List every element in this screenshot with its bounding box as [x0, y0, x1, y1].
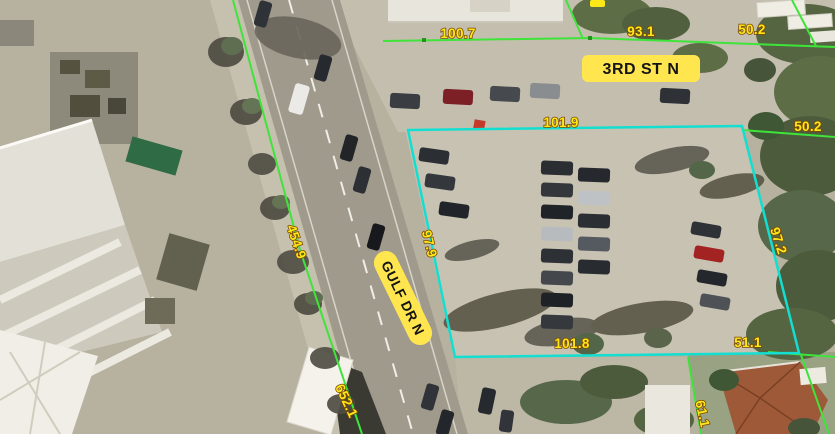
car	[578, 236, 610, 251]
street-label-text: 3RD ST N	[603, 61, 680, 78]
car	[541, 226, 573, 241]
car	[443, 89, 474, 106]
car	[541, 314, 573, 329]
street-label-3rd-st: 3RD ST N	[582, 55, 700, 82]
cutoff-dimension-label	[590, 0, 605, 7]
car	[390, 93, 421, 110]
car	[660, 88, 691, 105]
car	[578, 259, 610, 274]
car	[541, 248, 573, 263]
car	[541, 270, 573, 285]
map-viewport[interactable]: 100.7 93.1 50.2 50.2 101.9 97.9 454.9 97…	[0, 0, 835, 434]
car	[578, 190, 610, 205]
aerial-map-canvas[interactable]: 100.7 93.1 50.2 50.2 101.9 97.9 454.9 97…	[0, 0, 835, 434]
car	[578, 167, 610, 182]
dimension-label: 93.1	[627, 24, 655, 39]
buildings-north	[388, 0, 563, 22]
car	[541, 292, 573, 307]
dimension-label: 101.8	[554, 336, 589, 351]
dimension-label: 50.2	[738, 22, 765, 37]
car	[490, 86, 521, 103]
car	[541, 204, 573, 219]
dimension-label: 101.9	[543, 115, 578, 130]
car	[578, 213, 610, 228]
car	[530, 83, 561, 100]
dimension-label: 100.7	[440, 26, 475, 41]
car	[541, 182, 573, 197]
dimension-label: 51.1	[734, 335, 762, 350]
aerial-imagery	[0, 0, 835, 434]
car	[541, 160, 573, 175]
dimension-label: 50.2	[794, 119, 821, 134]
